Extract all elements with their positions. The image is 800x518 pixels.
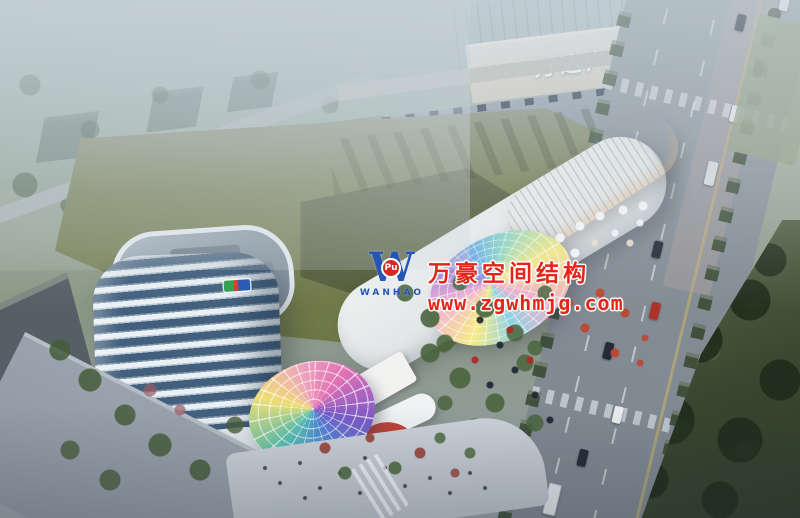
watermark-company-name: 万豪空间结构 bbox=[428, 254, 624, 288]
watermark-logo: W Pu WANHAO bbox=[356, 250, 428, 312]
watermark-logo-badge: Pu bbox=[381, 258, 401, 278]
aerial-rendering-scene: 万达广场 bbox=[0, 0, 800, 518]
watermark: W Pu WANHAO 万豪空间结构 www.zgwhmjg.com bbox=[356, 250, 592, 316]
watermark-text: 万豪空间结构 www.zgwhmjg.com bbox=[428, 250, 624, 315]
watermark-logo-name: WANHAO bbox=[356, 288, 428, 298]
watermark-website: www.zgwhmjg.com bbox=[428, 291, 624, 315]
